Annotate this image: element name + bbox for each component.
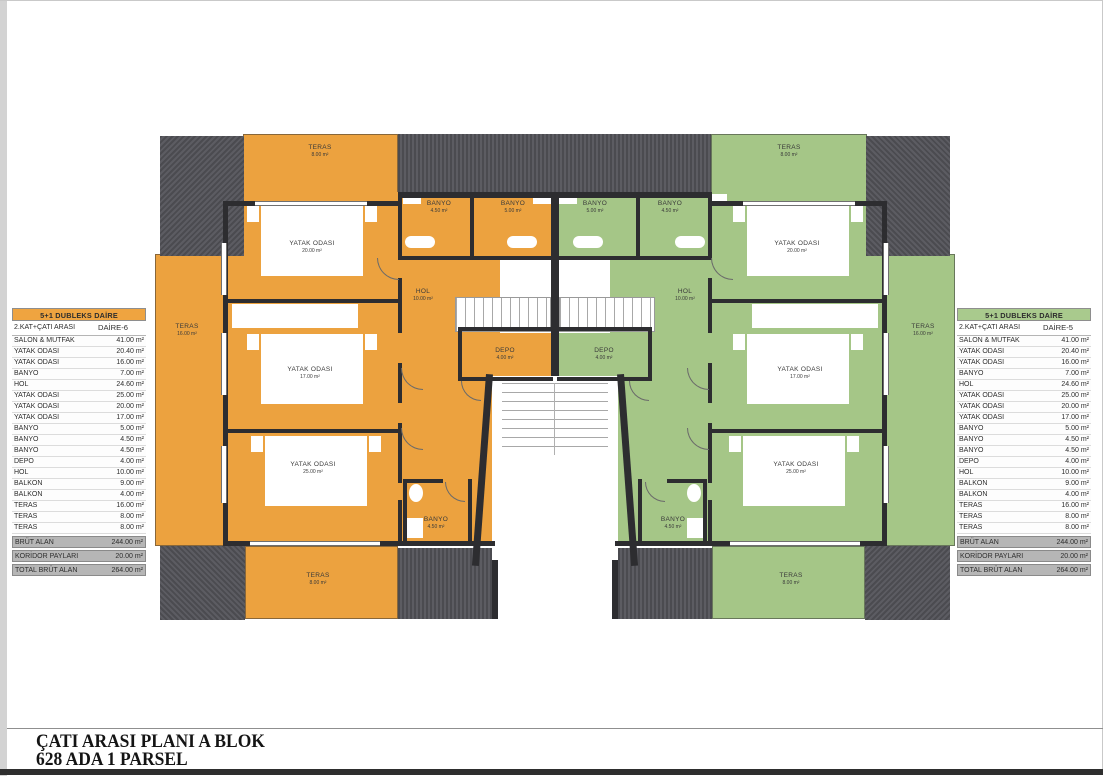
row-value: 25.00 m² — [1045, 391, 1091, 401]
row-label: DEPO — [12, 457, 100, 467]
row-value: 10.00 m² — [1045, 468, 1091, 478]
area-table-daire6: 5+1 DUBLEKS DAİRE 2.KAT+ÇATI ARASI DAİRE… — [12, 308, 146, 576]
table-subheader: 2.KAT+ÇATI ARASI DAİRE-5 — [957, 321, 1091, 336]
row-label: YATAK ODASI — [957, 391, 1045, 401]
table-row: YATAK ODASI17.00 m² — [12, 413, 146, 424]
wall — [403, 479, 407, 543]
teras-side-right — [885, 254, 955, 546]
nightstand — [851, 334, 863, 350]
area-table-daire5: 5+1 DUBLEKS DAİRE 2.KAT+ÇATI ARASI DAİRE… — [957, 308, 1091, 576]
table-row: BANYO4.50 m² — [957, 435, 1091, 446]
table-row: BANYO5.00 m² — [957, 424, 1091, 435]
table-row: HOL10.00 m² — [957, 468, 1091, 479]
room-label-teras: TERAS8.00 m² — [278, 144, 362, 158]
row-label: TOTAL BRÜT ALAN — [13, 565, 99, 575]
row-label: BANYO — [957, 435, 1045, 445]
floor-label: 2.KAT+ÇATI ARASI — [957, 321, 1043, 335]
window — [221, 446, 227, 503]
row-value: 8.00 m² — [100, 512, 146, 522]
row-value: 17.00 m² — [100, 413, 146, 423]
table-row: SALON & MUTFAK41.00 m² — [12, 336, 146, 347]
table-row: BALKON4.00 m² — [12, 490, 146, 501]
row-value: 4.00 m² — [1045, 490, 1091, 500]
row-label: TERAS — [12, 501, 100, 511]
window — [743, 201, 855, 206]
table-row: TERAS8.00 m² — [12, 523, 146, 534]
table-row: BALKON4.00 m² — [957, 490, 1091, 501]
window — [883, 243, 889, 295]
nm: TERAS — [893, 323, 953, 330]
nightstand — [247, 334, 259, 350]
row-value: 264.00 m² — [99, 565, 145, 575]
roof-corner-top-right — [866, 136, 950, 256]
table-row: BANYO7.00 m² — [957, 369, 1091, 380]
row-label: BANYO — [12, 446, 100, 456]
table-row: HOL24.60 m² — [957, 380, 1091, 391]
room-label-banyo: BANYO5.00 m² — [565, 200, 625, 214]
party-wall — [551, 192, 559, 376]
room-label-yatak-odasi: YATAK ODASI20.00 m² — [270, 240, 354, 254]
table-row: HOL24.60 m² — [12, 380, 146, 391]
ar: 4.50 m² — [643, 524, 703, 530]
table-row: BANYO4.50 m² — [12, 446, 146, 457]
table-row: SALON & MUTFAK41.00 m² — [957, 336, 1091, 347]
wall — [612, 560, 618, 619]
room-label-depo: DEPO4.00 m² — [475, 347, 535, 361]
room-label-teras: TERAS8.00 m² — [747, 144, 831, 158]
row-label: YATAK ODASI — [12, 391, 100, 401]
row-label: YATAK ODASI — [12, 347, 100, 357]
room-label-banyo: BANYO4.50 m² — [409, 200, 469, 214]
drawing-title-line2: 628 ADA 1 PARSEL — [36, 751, 265, 769]
roof-top-center — [398, 134, 711, 192]
row-label: YATAK ODASI — [957, 358, 1045, 368]
room-label-teras: TERAS8.00 m² — [749, 572, 833, 586]
ar: 5.00 m² — [483, 208, 543, 214]
wall — [458, 327, 553, 331]
nm: BANYO — [565, 200, 625, 207]
row-value: 5.00 m² — [100, 424, 146, 434]
row-label: YATAK ODASI — [957, 347, 1045, 357]
stair-divider-line — [554, 383, 555, 455]
row-label: BALKON — [957, 479, 1045, 489]
ar: 4.50 m² — [406, 524, 466, 530]
table-row: YATAK ODASI17.00 m² — [957, 413, 1091, 424]
nm: BANYO — [483, 200, 543, 207]
nightstand — [847, 436, 859, 452]
room-label-depo: DEPO4.00 m² — [574, 347, 634, 361]
nm: TERAS — [278, 144, 362, 151]
nm: YATAK ODASI — [755, 240, 839, 247]
teras-side-left — [155, 254, 225, 546]
table-header: 5+1 DUBLEKS DAİRE — [12, 308, 146, 321]
row-label: TERAS — [957, 501, 1045, 511]
unit-label: DAİRE-5 — [1043, 321, 1091, 335]
row-value: 8.00 m² — [100, 523, 146, 533]
window — [221, 333, 227, 395]
table-row: TERAS8.00 m² — [957, 512, 1091, 523]
row-label: KORİDOR PAYLARI — [958, 551, 1044, 561]
wall — [403, 479, 443, 483]
row-label: KORİDOR PAYLARI — [13, 551, 99, 561]
room-label-banyo: BANYO4.50 m² — [640, 200, 700, 214]
table-header: 5+1 DUBLEKS DAİRE — [957, 308, 1091, 321]
window — [883, 446, 889, 503]
table-summary: BRÜT ALAN244.00 m²KORİDOR PAYLARI20.00 m… — [957, 536, 1091, 576]
nightstand — [733, 206, 745, 222]
table-row: BANYO5.00 m² — [12, 424, 146, 435]
room-label-hol: HOL10.00 m² — [393, 288, 453, 302]
row-label: BANYO — [957, 424, 1045, 434]
row-label: HOL — [957, 468, 1045, 478]
row-label: TERAS — [957, 523, 1045, 533]
nm: YATAK ODASI — [758, 366, 842, 373]
wall — [638, 479, 642, 543]
table-row: BALKON9.00 m² — [12, 479, 146, 490]
table-row: TERAS8.00 m² — [12, 512, 146, 523]
table-row: YATAK ODASI25.00 m² — [12, 391, 146, 402]
room-label-hol: HOL10.00 m² — [655, 288, 715, 302]
row-value: 20.00 m² — [1045, 402, 1091, 412]
nm: BANYO — [409, 200, 469, 207]
row-label: BALKON — [12, 490, 100, 500]
room-label-yatak-odasi: YATAK ODASI25.00 m² — [271, 461, 355, 475]
nightstand — [729, 436, 741, 452]
table-summary-row: TOTAL BRÜT ALAN264.00 m² — [12, 564, 146, 576]
row-label: SALON & MUTFAK — [957, 336, 1045, 346]
ar: 8.00 m² — [278, 152, 362, 158]
table-summary-row: TOTAL BRÜT ALAN264.00 m² — [957, 564, 1091, 576]
row-label: BALKON — [957, 490, 1045, 500]
nm: YATAK ODASI — [754, 461, 838, 468]
row-value: 4.50 m² — [1045, 435, 1091, 445]
row-value: 5.00 m² — [1045, 424, 1091, 434]
nm: DEPO — [475, 347, 535, 354]
stairwell-treads — [502, 383, 608, 455]
nm: YATAK ODASI — [270, 240, 354, 247]
window — [255, 201, 367, 206]
room-label-teras: TERAS16.00 m² — [157, 323, 217, 337]
ar: 20.00 m² — [270, 248, 354, 254]
closet-daire5 — [752, 304, 878, 328]
row-value: 10.00 m² — [100, 468, 146, 478]
roof-corner-bottom-left — [160, 546, 245, 620]
room-label-yatak-odasi: YATAK ODASI17.00 m² — [268, 366, 352, 380]
table-row: BANYO7.00 m² — [12, 369, 146, 380]
row-label: HOL — [12, 380, 100, 390]
row-label: HOL — [12, 468, 100, 478]
table-summary-row: KORİDOR PAYLARI20.00 m² — [957, 550, 1091, 562]
wall — [458, 327, 462, 381]
table-row: YATAK ODASI25.00 m² — [957, 391, 1091, 402]
room-label-yatak-odasi: YATAK ODASI17.00 m² — [758, 366, 842, 380]
ar: 20.00 m² — [755, 248, 839, 254]
toilet — [687, 484, 701, 502]
row-value: 16.00 m² — [100, 358, 146, 368]
wall — [648, 327, 652, 381]
wall — [470, 192, 474, 258]
row-value: 8.00 m² — [1045, 523, 1091, 533]
roof-corner-top-left — [160, 136, 244, 256]
table-row: BANYO4.50 m² — [12, 435, 146, 446]
wall — [555, 256, 712, 260]
row-label: TOTAL BRÜT ALAN — [958, 565, 1044, 575]
wall — [708, 429, 885, 433]
row-value: 4.00 m² — [1045, 457, 1091, 467]
ar: 17.00 m² — [758, 374, 842, 380]
wall — [492, 560, 498, 619]
row-label: DEPO — [957, 457, 1045, 467]
ar: 10.00 m² — [393, 296, 453, 302]
bathtub — [405, 236, 435, 248]
row-value: 4.50 m² — [1045, 446, 1091, 456]
table-row: BALKON9.00 m² — [957, 479, 1091, 490]
row-value: 20.00 m² — [1044, 551, 1090, 561]
room-label-banyo: BANYO4.50 m² — [643, 516, 703, 530]
nightstand — [851, 206, 863, 222]
page-bottom-edge — [0, 769, 1103, 775]
nm: YATAK ODASI — [271, 461, 355, 468]
nm: TERAS — [276, 572, 360, 579]
bathtub — [573, 236, 603, 248]
table-summary: BRÜT ALAN244.00 m²KORİDOR PAYLARI20.00 m… — [12, 536, 146, 576]
table-row: TERAS16.00 m² — [957, 501, 1091, 512]
nightstand — [365, 334, 377, 350]
row-label: BALKON — [12, 479, 100, 489]
wall — [398, 500, 402, 543]
row-value: 7.00 m² — [1045, 369, 1091, 379]
row-label: BANYO — [12, 424, 100, 434]
page: { "page": { "title_line1": "ÇATI ARASI P… — [0, 0, 1103, 775]
row-value: 16.00 m² — [100, 501, 146, 511]
row-value: 244.00 m² — [1044, 537, 1090, 547]
row-label: TERAS — [12, 523, 100, 533]
row-value: 20.40 m² — [100, 347, 146, 357]
row-label: YATAK ODASI — [12, 358, 100, 368]
nm: YATAK ODASI — [268, 366, 352, 373]
table-row: TERAS16.00 m² — [12, 501, 146, 512]
row-label: BRÜT ALAN — [958, 537, 1044, 547]
ar: 10.00 m² — [655, 296, 715, 302]
table-summary-row: KORİDOR PAYLARI20.00 m² — [12, 550, 146, 562]
table-rows: SALON & MUTFAK41.00 m²YATAK ODASI20.40 m… — [12, 336, 146, 534]
wall — [557, 327, 652, 331]
row-value: 20.00 m² — [99, 551, 145, 561]
ar: 5.00 m² — [565, 208, 625, 214]
row-label: BANYO — [12, 435, 100, 445]
drawing-title: ÇATI ARASI PLANI A BLOK 628 ADA 1 PARSEL — [36, 733, 265, 769]
window — [883, 333, 889, 395]
toilet — [409, 484, 423, 502]
nm: TERAS — [157, 323, 217, 330]
row-value: 41.00 m² — [1045, 336, 1091, 346]
nm: BANYO — [406, 516, 466, 523]
nm: TERAS — [749, 572, 833, 579]
room-label-yatak-odasi: YATAK ODASI20.00 m² — [755, 240, 839, 254]
ar: 4.50 m² — [640, 208, 700, 214]
wall — [398, 192, 402, 258]
ar: 8.00 m² — [749, 580, 833, 586]
table-row: YATAK ODASI20.00 m² — [12, 402, 146, 413]
row-value: 20.40 m² — [1045, 347, 1091, 357]
window — [250, 541, 380, 546]
table-row: YATAK ODASI20.00 m² — [957, 402, 1091, 413]
wall — [708, 500, 712, 543]
room-label-teras: TERAS16.00 m² — [893, 323, 953, 337]
floor-label: 2.KAT+ÇATI ARASI — [12, 321, 98, 335]
ar: 17.00 m² — [268, 374, 352, 380]
ar: 25.00 m² — [271, 469, 355, 475]
room-label-banyo: BANYO4.50 m² — [406, 516, 466, 530]
closet-daire6 — [232, 304, 358, 328]
room-label-teras: TERAS8.00 m² — [276, 572, 360, 586]
window — [730, 541, 860, 546]
row-value: 16.00 m² — [1045, 358, 1091, 368]
wall — [468, 479, 472, 543]
row-value: 16.00 m² — [1045, 501, 1091, 511]
table-subheader: 2.KAT+ÇATI ARASI DAİRE-6 — [12, 321, 146, 336]
row-label: BANYO — [957, 369, 1045, 379]
bathtub — [507, 236, 537, 248]
ar: 4.00 m² — [475, 355, 535, 361]
bathtub — [675, 236, 705, 248]
row-value: 41.00 m² — [100, 336, 146, 346]
window — [221, 243, 227, 295]
ar: 8.00 m² — [747, 152, 831, 158]
ar: 4.00 m² — [574, 355, 634, 361]
row-value: 4.50 m² — [100, 446, 146, 456]
wall — [708, 299, 885, 303]
nightstand — [251, 436, 263, 452]
row-value: 9.00 m² — [1045, 479, 1091, 489]
row-value: 8.00 m² — [1045, 512, 1091, 522]
ar: 16.00 m² — [157, 331, 217, 337]
ar: 25.00 m² — [754, 469, 838, 475]
table-row: DEPO4.00 m² — [12, 457, 146, 468]
row-label: BRÜT ALAN — [13, 537, 99, 547]
table-row: HOL10.00 m² — [12, 468, 146, 479]
nightstand — [733, 334, 745, 350]
row-value: 4.00 m² — [100, 457, 146, 467]
room-label-yatak-odasi: YATAK ODASI25.00 m² — [754, 461, 838, 475]
wall — [398, 278, 402, 333]
table-row: YATAK ODASI16.00 m² — [12, 358, 146, 369]
row-label: SALON & MUTFAK — [12, 336, 100, 346]
room-label-banyo: BANYO5.00 m² — [483, 200, 543, 214]
table-row: YATAK ODASI20.40 m² — [957, 347, 1091, 358]
row-value: 7.00 m² — [100, 369, 146, 379]
nm: BANYO — [643, 516, 703, 523]
floor-plan: TERAS8.00 m² YATAK ODASI20.00 m² BANYO4.… — [155, 128, 955, 623]
wall — [708, 192, 712, 258]
row-value: 25.00 m² — [100, 391, 146, 401]
table-summary-row: BRÜT ALAN244.00 m² — [957, 536, 1091, 548]
row-value: 9.00 m² — [100, 479, 146, 489]
row-label: BANYO — [957, 446, 1045, 456]
row-value: 244.00 m² — [99, 537, 145, 547]
row-value: 24.60 m² — [1045, 380, 1091, 390]
row-label: BANYO — [12, 369, 100, 379]
row-label: YATAK ODASI — [12, 413, 100, 423]
row-label: HOL — [957, 380, 1045, 390]
wall — [225, 429, 402, 433]
wall — [225, 299, 402, 303]
row-value: 17.00 m² — [1045, 413, 1091, 423]
row-label: YATAK ODASI — [957, 402, 1045, 412]
nm: TERAS — [747, 144, 831, 151]
title-divider-line — [7, 728, 1103, 729]
ar: 16.00 m² — [893, 331, 953, 337]
table-row: YATAK ODASI20.40 m² — [12, 347, 146, 358]
nightstand — [247, 206, 259, 222]
wall — [708, 278, 712, 333]
nm: HOL — [393, 288, 453, 295]
nm: DEPO — [574, 347, 634, 354]
table-summary-row: BRÜT ALAN244.00 m² — [12, 536, 146, 548]
row-label: YATAK ODASI — [957, 413, 1045, 423]
row-value: 264.00 m² — [1044, 565, 1090, 575]
nightstand — [365, 206, 377, 222]
row-label: TERAS — [12, 512, 100, 522]
table-row: BANYO4.50 m² — [957, 446, 1091, 457]
row-value: 20.00 m² — [100, 402, 146, 412]
row-value: 24.60 m² — [100, 380, 146, 390]
roof-corner-bottom-right — [865, 546, 950, 620]
nm: BANYO — [640, 200, 700, 207]
wall — [703, 479, 707, 543]
table-row: TERAS8.00 m² — [957, 523, 1091, 534]
table-rows: SALON & MUTFAK41.00 m²YATAK ODASI20.40 m… — [957, 336, 1091, 534]
table-row: DEPO4.00 m² — [957, 457, 1091, 468]
row-label: TERAS — [957, 512, 1045, 522]
ar: 8.00 m² — [276, 580, 360, 586]
ar: 4.50 m² — [409, 208, 469, 214]
nm: HOL — [655, 288, 715, 295]
wall — [398, 256, 555, 260]
row-value: 4.50 m² — [100, 435, 146, 445]
page-left-margin — [0, 1, 7, 776]
table-row: YATAK ODASI16.00 m² — [957, 358, 1091, 369]
row-label: YATAK ODASI — [12, 402, 100, 412]
unit-label: DAİRE-6 — [98, 321, 146, 335]
nightstand — [369, 436, 381, 452]
wall — [667, 479, 707, 483]
row-value: 4.00 m² — [100, 490, 146, 500]
